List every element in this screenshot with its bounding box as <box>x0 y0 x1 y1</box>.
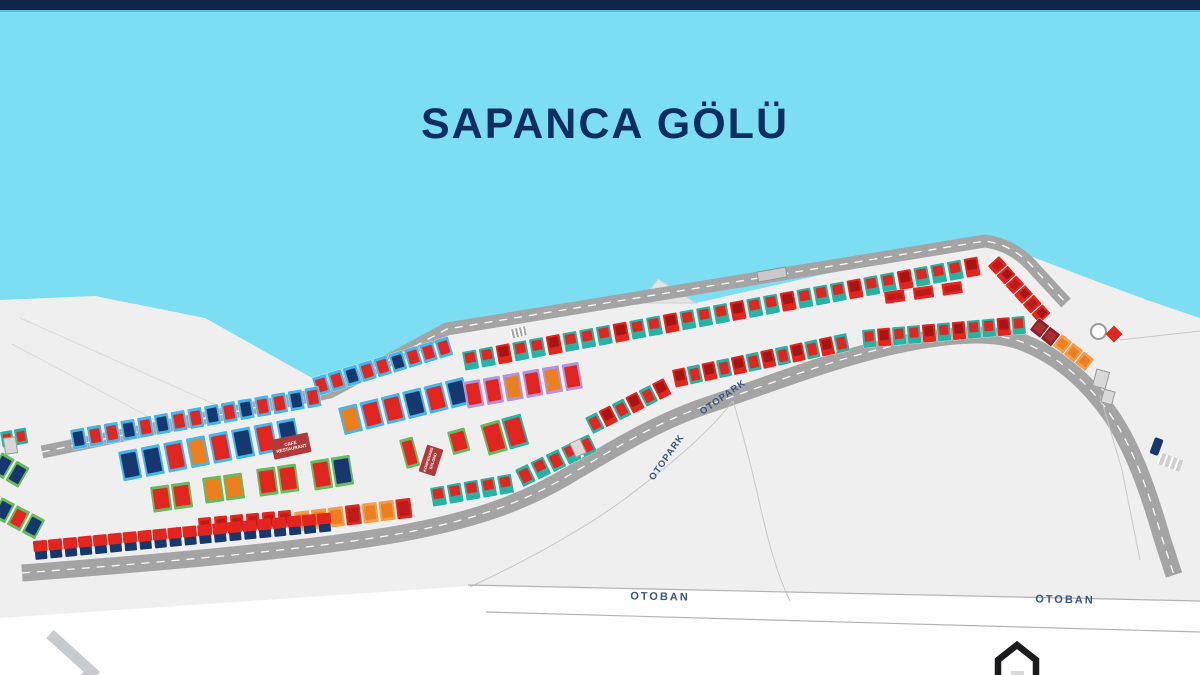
plot-unit[interactable] <box>612 322 629 343</box>
plot-unit[interactable] <box>579 328 596 349</box>
circle-marker <box>1090 323 1107 340</box>
block-green-6 <box>447 427 473 455</box>
block-green-2 <box>202 472 247 504</box>
plot-unit[interactable] <box>701 361 717 381</box>
plot-unit[interactable] <box>310 458 333 491</box>
plot-unit[interactable] <box>402 387 427 419</box>
block-green-west-1 <box>0 452 31 489</box>
plot-unit[interactable] <box>168 529 182 547</box>
plot-unit[interactable] <box>687 364 703 384</box>
plot-unit[interactable] <box>423 382 448 414</box>
plot-unit[interactable] <box>213 525 227 543</box>
parking-marker <box>1157 452 1184 471</box>
block-green-1 <box>150 481 195 513</box>
plot-unit[interactable] <box>967 320 982 339</box>
plot-unit[interactable] <box>963 257 980 278</box>
plot-unit[interactable] <box>763 294 780 315</box>
sign-marker <box>3 436 18 455</box>
plot-unit[interactable] <box>163 440 187 473</box>
plot-unit[interactable] <box>996 317 1011 336</box>
plot-unit[interactable] <box>479 346 496 367</box>
plot-unit[interactable] <box>982 318 997 337</box>
plot-unit[interactable] <box>271 392 288 414</box>
plot-unit[interactable] <box>796 287 813 308</box>
block-green-3 <box>256 463 301 497</box>
home-icon[interactable] <box>988 638 1050 675</box>
plot-unit[interactable] <box>49 540 63 558</box>
plot-unit[interactable] <box>139 532 153 550</box>
plot-unit[interactable] <box>529 337 546 358</box>
row-second-west <box>585 377 673 434</box>
plot-unit[interactable] <box>221 401 238 423</box>
plot-unit[interactable] <box>846 278 863 299</box>
plot-unit[interactable] <box>542 365 563 395</box>
plot-unit[interactable] <box>941 281 962 296</box>
otoban-label-right: OTOBAN <box>1015 593 1115 607</box>
plot-unit[interactable] <box>862 329 877 348</box>
plot-unit[interactable] <box>646 315 663 336</box>
plot-unit[interactable] <box>137 416 154 438</box>
plot-unit[interactable] <box>913 266 930 287</box>
plot-unit[interactable] <box>150 484 172 512</box>
plot-unit[interactable] <box>497 474 514 495</box>
plot-unit[interactable] <box>913 285 934 300</box>
plot-unit[interactable] <box>745 352 761 372</box>
plot-unit[interactable] <box>381 393 406 425</box>
row-bottom-red <box>34 514 334 561</box>
plot-unit[interactable] <box>495 343 512 364</box>
plot-unit[interactable] <box>345 504 362 526</box>
plot-unit[interactable] <box>223 472 245 500</box>
plot-unit[interactable] <box>760 349 776 369</box>
plot-unit[interactable] <box>716 358 732 378</box>
site-plan-page: CAFE RESTAURANT KONFERANS SALONU SAPANCA… <box>0 0 1200 675</box>
plot-unit[interactable] <box>331 455 354 488</box>
plot-unit[interactable] <box>141 444 165 477</box>
plot-unit[interactable] <box>361 502 378 524</box>
plot-unit[interactable] <box>462 349 479 370</box>
crosswalk-marker <box>509 326 527 338</box>
plot-unit[interactable] <box>512 340 529 361</box>
plot-unit[interactable] <box>34 542 48 560</box>
plot-unit[interactable] <box>118 448 142 481</box>
kiosk-marker <box>1092 368 1110 389</box>
plot-unit[interactable] <box>103 422 120 444</box>
plot-unit[interactable] <box>729 300 746 321</box>
block-green-west-2 <box>0 497 47 540</box>
plot-unit[interactable] <box>237 398 254 420</box>
plot-unit[interactable] <box>171 481 193 509</box>
plot-unit[interactable] <box>399 436 420 469</box>
plot-unit[interactable] <box>109 535 123 553</box>
block-green-5 <box>399 436 422 469</box>
top-bar-edge <box>0 10 1200 12</box>
plot-unit[interactable] <box>907 325 922 344</box>
plot-unit[interactable] <box>663 312 680 333</box>
plot-unit[interactable] <box>447 483 464 504</box>
plot-unit[interactable] <box>819 336 835 356</box>
lake-title: SAPANCA GÖLÜ <box>300 100 910 149</box>
plot-unit[interactable] <box>522 369 543 399</box>
plot-unit[interactable] <box>273 519 287 537</box>
block-blue-west-2 <box>338 376 473 435</box>
plot-unit[interactable] <box>1011 316 1026 335</box>
diamond-marker <box>1106 326 1123 343</box>
plot-unit[interactable] <box>70 428 87 450</box>
row-shore-upper-teal <box>462 256 984 371</box>
plot-unit[interactable] <box>338 403 363 435</box>
plot-unit[interactable] <box>672 367 688 387</box>
plot-unit[interactable] <box>546 334 563 355</box>
plot-unit[interactable] <box>64 539 78 557</box>
plot-unit[interactable] <box>228 523 242 541</box>
plot-unit[interactable] <box>303 516 317 534</box>
plot-unit[interactable] <box>813 284 830 305</box>
plot-unit[interactable] <box>243 522 257 540</box>
plot-unit[interactable] <box>430 486 447 507</box>
plot-unit[interactable] <box>804 339 820 359</box>
row-strip-orange <box>1051 334 1095 374</box>
plot-unit[interactable] <box>483 376 504 406</box>
plot-unit[interactable] <box>318 515 332 533</box>
plot-unit[interactable] <box>780 291 797 312</box>
plot-unit[interactable] <box>775 345 791 365</box>
plot-unit[interactable] <box>198 526 212 544</box>
plot-unit[interactable] <box>561 362 582 392</box>
block-purple <box>463 361 586 408</box>
plot-unit[interactable] <box>288 517 302 535</box>
kiosk-marker <box>1100 389 1115 406</box>
plot-unit[interactable] <box>562 331 579 352</box>
plot-unit[interactable] <box>952 321 967 340</box>
plot-unit[interactable] <box>447 427 471 455</box>
plot-unit[interactable] <box>187 407 204 429</box>
chevron-right-icon[interactable] <box>40 628 110 675</box>
plot-unit[interactable] <box>892 326 907 345</box>
plot-unit[interactable] <box>395 498 412 520</box>
plot-unit[interactable] <box>124 533 138 551</box>
plot-unit[interactable] <box>87 425 104 447</box>
plot-unit[interactable] <box>208 431 232 464</box>
busstop-marker <box>756 266 787 282</box>
top-navy-bar <box>0 0 1200 10</box>
plot-unit[interactable] <box>463 379 484 409</box>
plot-unit[interactable] <box>154 413 171 435</box>
plot-unit[interactable] <box>434 336 453 358</box>
plot-unit[interactable] <box>258 520 272 538</box>
plot-unit[interactable] <box>183 527 197 545</box>
plot-unit[interactable] <box>277 463 300 493</box>
plot-unit[interactable] <box>696 306 713 327</box>
block-green-4 <box>310 454 356 490</box>
plot-unit[interactable] <box>731 355 747 375</box>
plot-unit[interactable] <box>502 372 523 402</box>
plot-unit[interactable] <box>378 500 395 522</box>
plot-unit[interactable] <box>922 324 937 343</box>
plot-unit[interactable] <box>231 426 255 459</box>
row-second-mid <box>672 333 852 388</box>
plot-unit[interactable] <box>186 435 210 468</box>
plot-unit[interactable] <box>304 386 321 408</box>
plot-unit[interactable] <box>833 333 849 353</box>
plot-unit[interactable] <box>288 389 305 411</box>
plot-unit[interactable] <box>877 328 892 347</box>
otoban-label-left: OTOBAN <box>610 590 710 604</box>
row-teal-curve-1 <box>430 473 517 506</box>
plot-unit[interactable] <box>930 263 947 284</box>
plot-unit[interactable] <box>204 404 221 426</box>
plot-unit[interactable] <box>947 260 964 281</box>
plot-unit[interactable] <box>746 297 763 318</box>
plot-unit[interactable] <box>359 398 384 430</box>
row-second-east <box>862 316 1028 348</box>
plot-unit[interactable] <box>120 419 137 441</box>
plot-unit[interactable] <box>789 342 805 362</box>
plot-unit[interactable] <box>884 289 905 304</box>
plot-unit[interactable] <box>897 269 914 290</box>
plot-unit[interactable] <box>256 466 279 496</box>
plot-unit[interactable] <box>713 303 730 324</box>
plot-unit[interactable] <box>830 281 847 302</box>
block-green-7 <box>480 413 531 456</box>
plot-unit[interactable] <box>202 475 224 503</box>
plot-unit[interactable] <box>79 538 93 556</box>
plot-unit[interactable] <box>153 530 167 548</box>
plot-unit[interactable] <box>480 477 497 498</box>
plot-unit[interactable] <box>863 275 880 296</box>
plot-unit[interactable] <box>254 395 271 417</box>
plot-unit[interactable] <box>629 318 646 339</box>
plot-unit[interactable] <box>170 410 187 432</box>
plot-unit[interactable] <box>596 325 613 346</box>
plot-unit[interactable] <box>937 322 952 341</box>
plot-unit[interactable] <box>94 536 108 554</box>
plot-unit[interactable] <box>679 309 696 330</box>
plot-unit[interactable] <box>463 480 480 501</box>
